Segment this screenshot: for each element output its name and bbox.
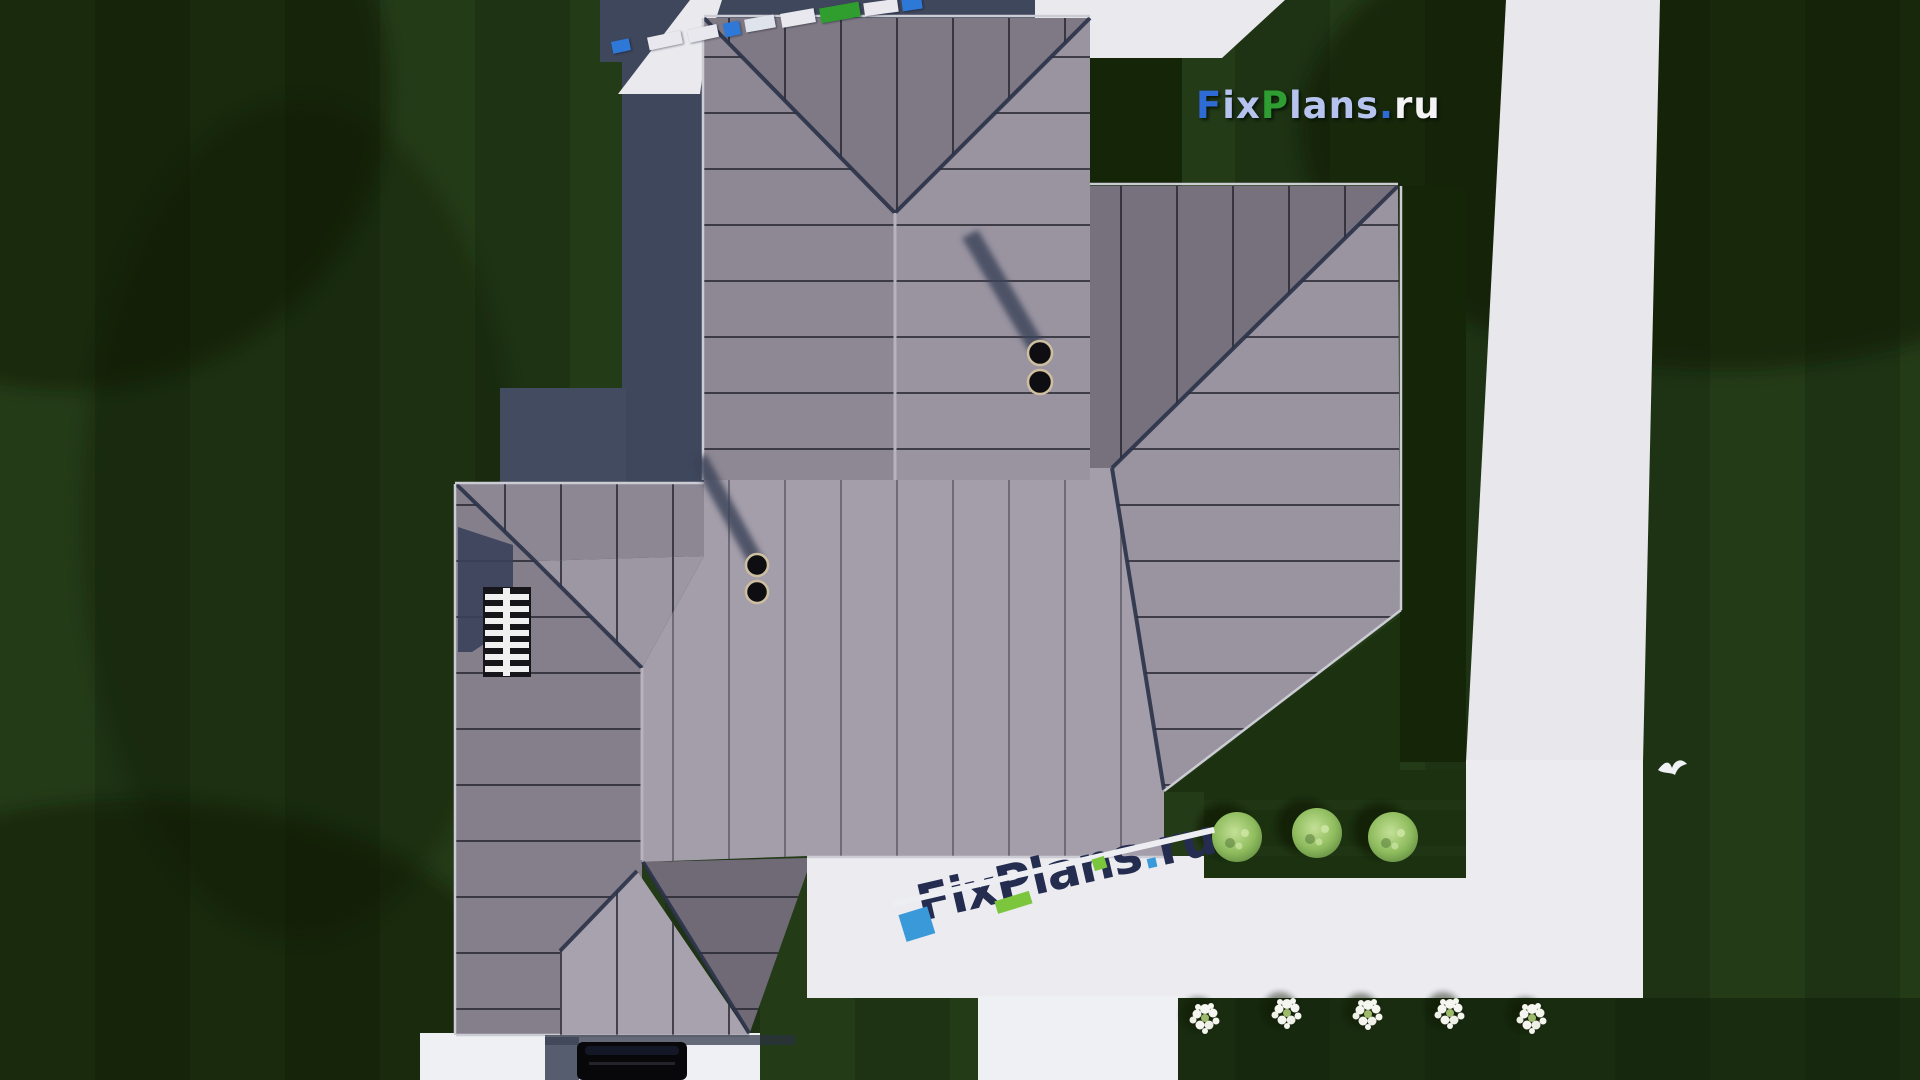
roof-wing-northwest [704,18,1090,480]
logo-letter: l [1289,84,1303,127]
logo-letter: P [1261,84,1289,127]
logo-letter: . [1379,84,1394,127]
path-plaza-south [978,996,1178,1080]
wall-shadow-terrace [500,388,626,486]
logo-letter: a [1303,84,1329,127]
render-image: FixPlans.ru FixPlans.ru [0,0,1920,1080]
logo-letter: r [1394,84,1413,127]
logo-letter: F [1196,84,1222,127]
grass-strip-right-of-roof [1400,186,1466,762]
brand-logo: FixPlans.ru [1196,84,1441,127]
logo-letter: n [1329,84,1356,127]
logo-letter: i [1222,84,1236,127]
logo-letter: u [1413,84,1440,127]
trellis [484,588,530,676]
logo-letter: s [1356,84,1379,127]
grass-block-top [1090,58,1182,186]
roof-central [642,468,1164,862]
logo-letter: x [1236,84,1261,127]
